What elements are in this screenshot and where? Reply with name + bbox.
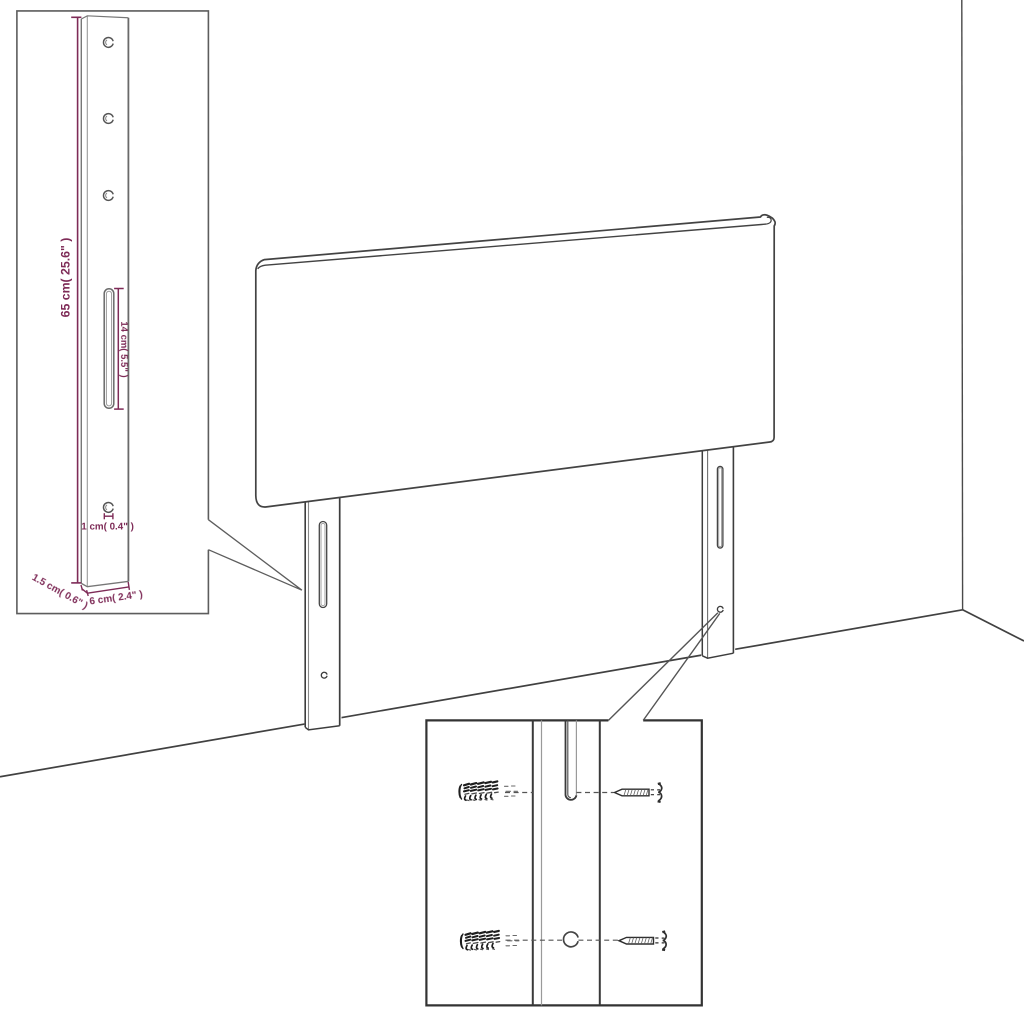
svg-text:65 cm( 25.6" ): 65 cm( 25.6" ) <box>59 238 73 318</box>
svg-text:14 cm( 5.5" ): 14 cm( 5.5" ) <box>118 321 129 377</box>
svg-text:1 cm( 0.4" ): 1 cm( 0.4" ) <box>81 521 134 532</box>
